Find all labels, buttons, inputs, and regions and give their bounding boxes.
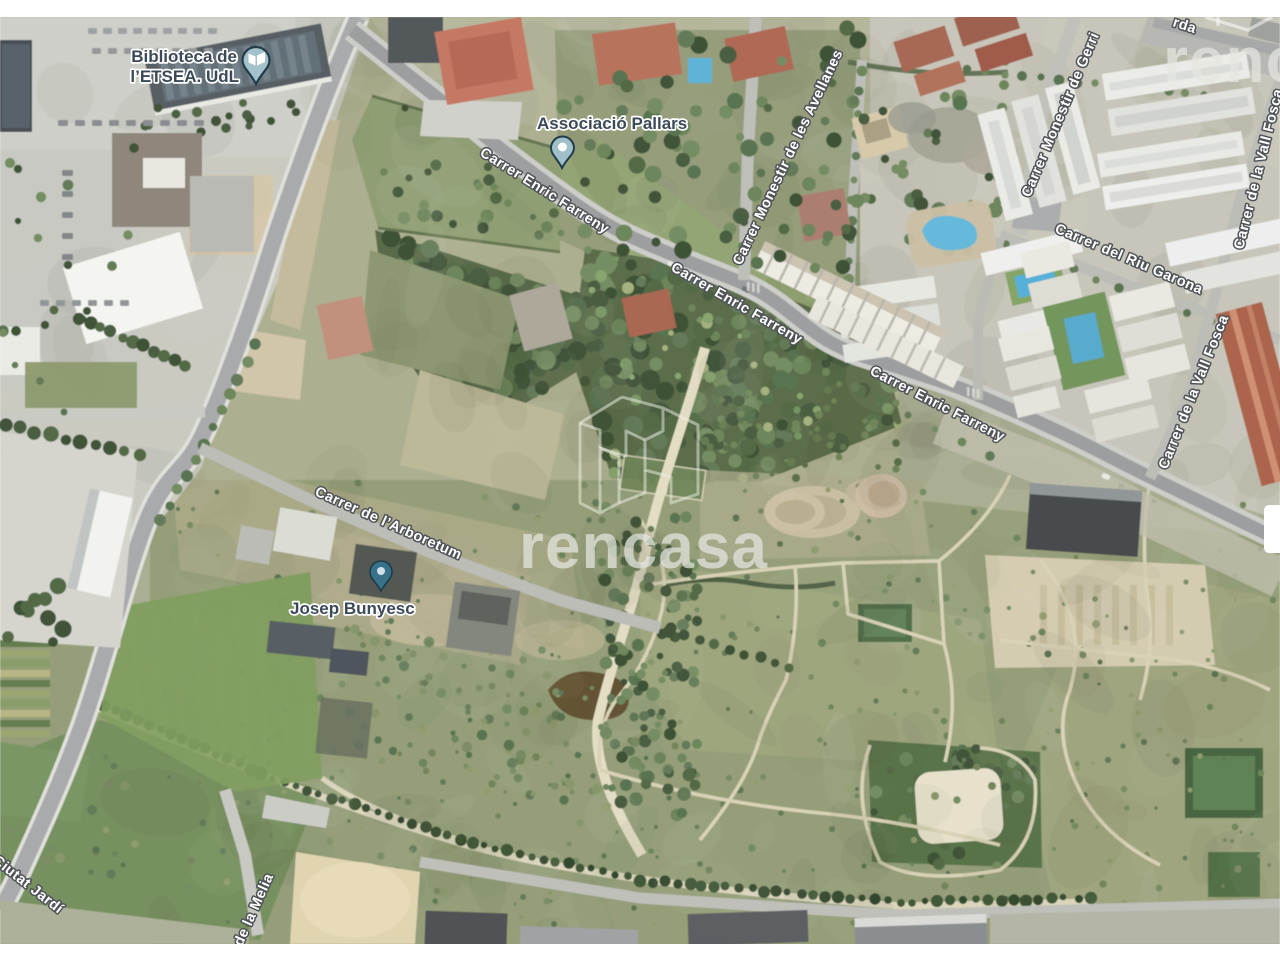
svg-text:rencasa: rencasa: [519, 510, 768, 582]
svg-text:Josep Bunyesc: Josep Bunyesc: [290, 599, 415, 618]
svg-text:renca: renca: [1163, 24, 1280, 96]
svg-text:Associació Pallars: Associació Pallars: [537, 114, 687, 133]
svg-text:l’ETSEA. UdL: l’ETSEA. UdL: [130, 67, 239, 86]
svg-text:Biblioteca de: Biblioteca de: [131, 47, 237, 66]
